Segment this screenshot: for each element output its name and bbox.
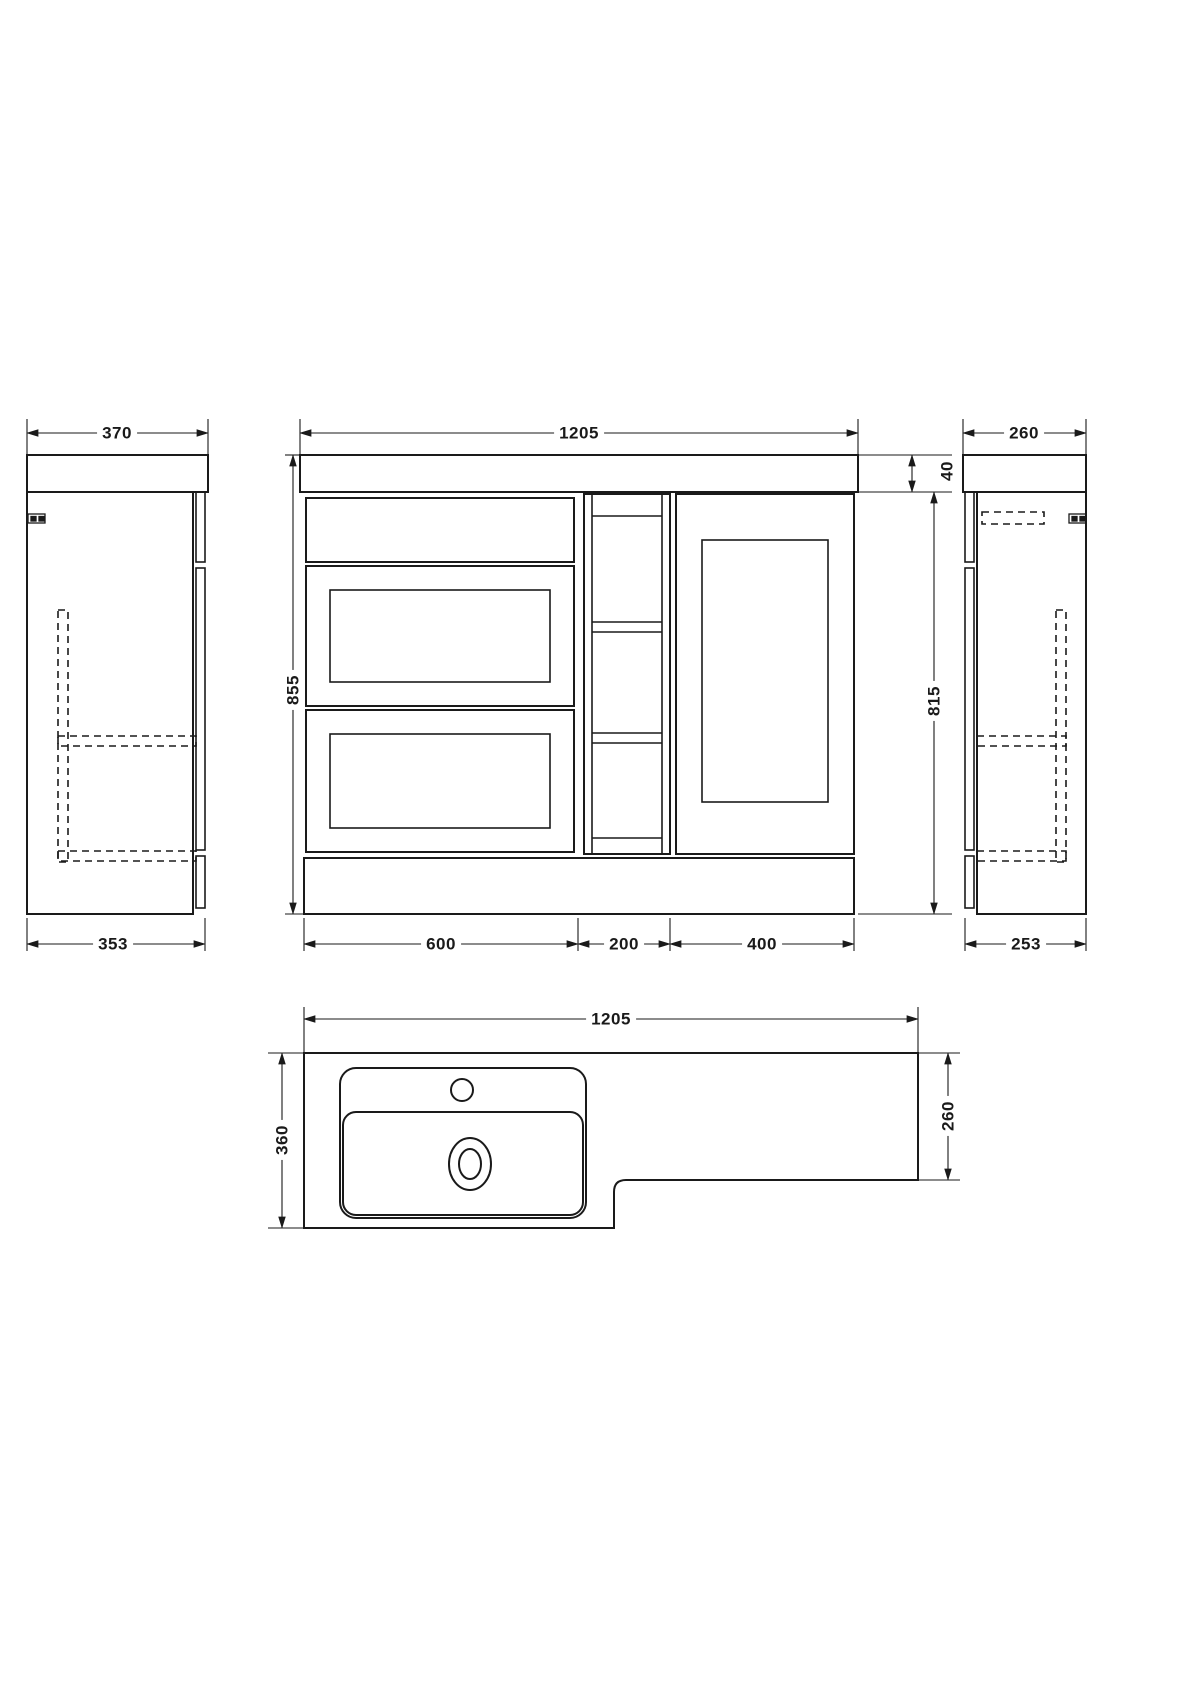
dim-worktop-thickness: 40 <box>939 456 956 486</box>
drawer-front-3 <box>306 710 574 852</box>
dim-plan-left-depth: 360 <box>274 1120 291 1160</box>
dim-front-height: 855 <box>285 670 302 710</box>
right-worktop <box>963 455 1086 492</box>
left-side-view-drawing <box>27 455 208 914</box>
drawer-3-panel <box>330 734 550 828</box>
right-side-view-drawing <box>963 455 1086 914</box>
basin-rim <box>340 1068 586 1218</box>
waste-inner-icon <box>459 1149 481 1179</box>
right-hidden-shelves-dashed <box>977 512 1066 862</box>
front-view-drawing <box>300 455 858 914</box>
dim-wc-unit-width: 400 <box>742 936 782 953</box>
waste-outer-icon <box>449 1138 491 1190</box>
wc-unit-door <box>676 494 854 854</box>
dim-right-worktop-depth: 260 <box>1004 425 1044 442</box>
dim-front-width: 1205 <box>554 425 604 442</box>
hinge-icon <box>1069 514 1086 523</box>
left-hidden-shelves-dashed <box>58 610 196 862</box>
dim-right-cabinet-depth: 253 <box>1006 936 1046 953</box>
hinge-icon <box>28 514 45 523</box>
drawer-2-panel <box>330 590 550 682</box>
front-plinth <box>304 858 854 914</box>
dimension-lines <box>27 419 1086 1228</box>
left-door-edge-strip <box>196 492 205 908</box>
drawer-front-2 <box>306 566 574 706</box>
dim-basin-unit-width: 600 <box>421 936 461 953</box>
drawer-front-1 <box>306 498 574 562</box>
dim-plan-right-depth: 260 <box>940 1096 957 1136</box>
technical-drawing: 370 353 1205 855 40 815 600 200 400 260 … <box>0 0 1190 1684</box>
left-worktop <box>27 455 208 492</box>
dim-left-worktop-depth: 370 <box>97 425 137 442</box>
dim-plan-width: 1205 <box>586 1011 636 1028</box>
right-door-edge-strip <box>965 492 974 908</box>
front-worktop <box>300 455 858 492</box>
open-shelf-unit <box>584 494 670 854</box>
plan-view-drawing <box>304 1053 918 1228</box>
dim-cabinet-height: 815 <box>926 681 943 721</box>
drawing-linework <box>0 0 1190 1684</box>
door-panel <box>702 540 828 802</box>
drawer-unit <box>306 498 574 852</box>
basin-bowl <box>343 1112 583 1215</box>
worktop-plan-outline <box>304 1053 918 1228</box>
tap-hole-icon <box>451 1079 473 1101</box>
dim-left-cabinet-depth: 353 <box>93 936 133 953</box>
dim-shelf-unit-width: 200 <box>604 936 644 953</box>
